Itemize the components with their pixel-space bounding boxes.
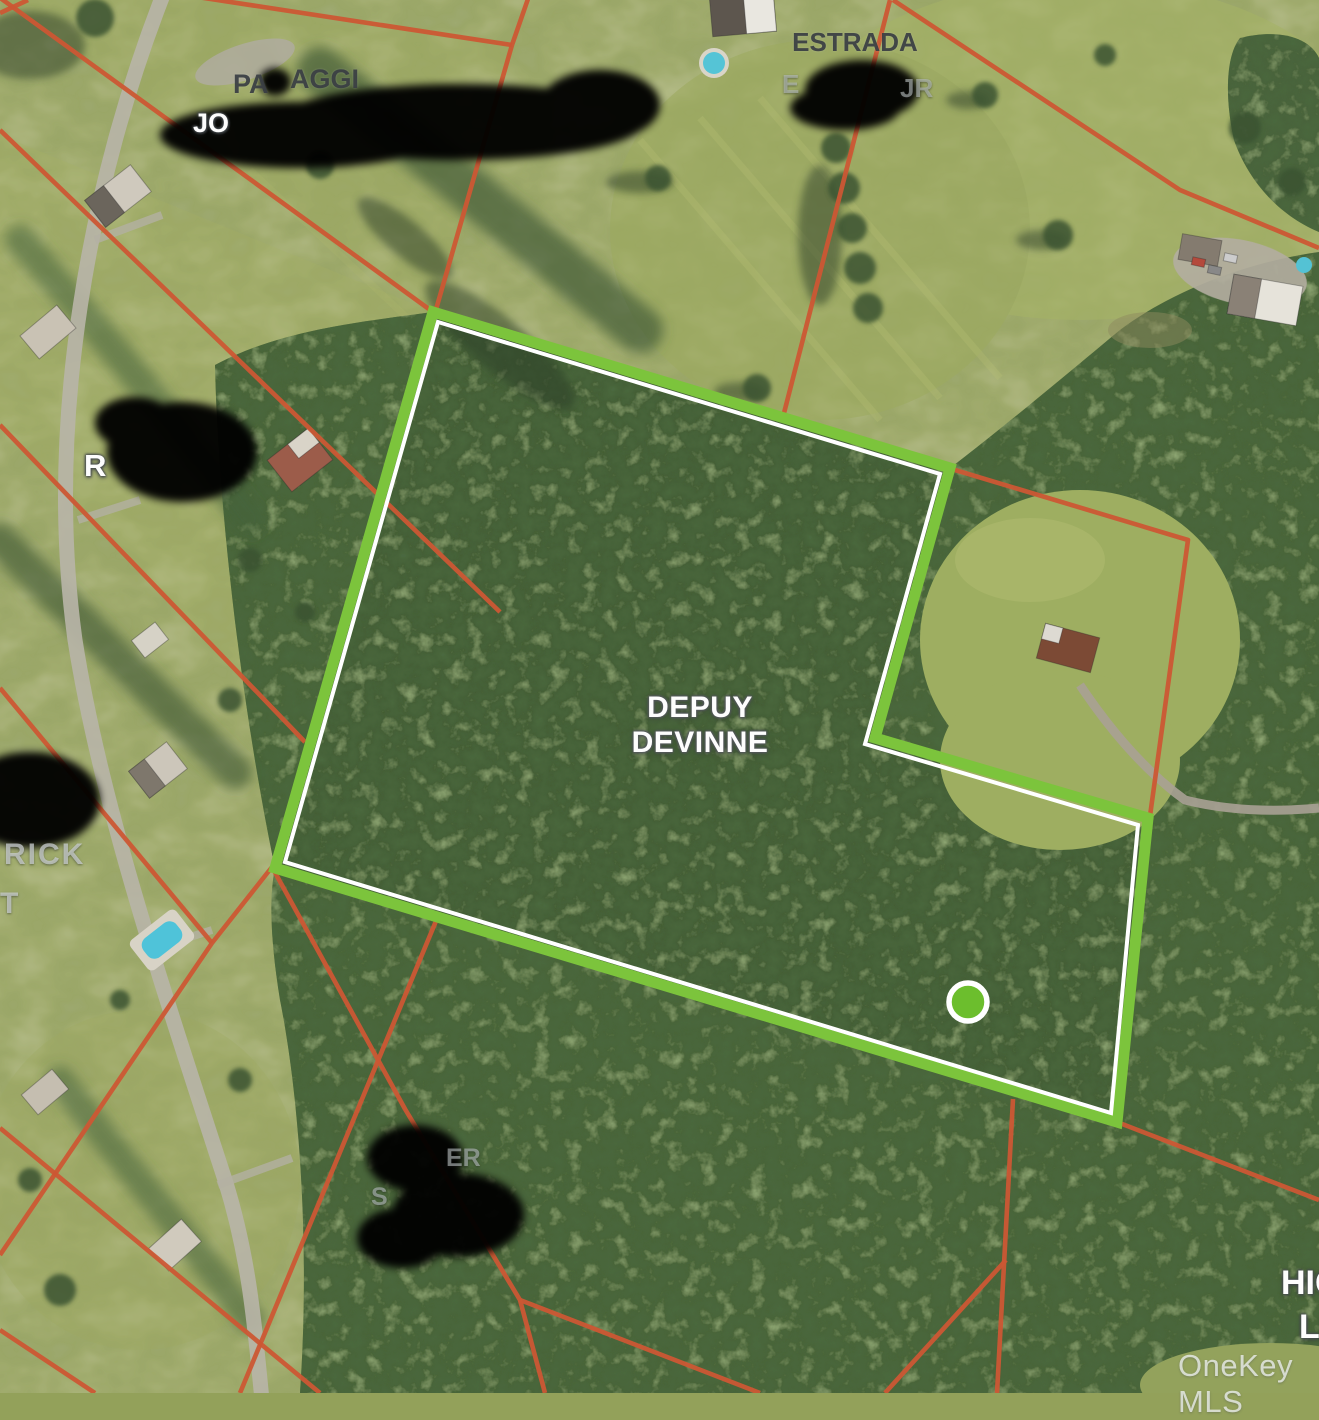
subject-parcel-label: DEPUY DEVINNE <box>555 690 845 760</box>
owner-label-west-fragment-r: R <box>84 448 106 484</box>
owner-label-passaggi-fragment-a: PA <box>233 69 269 100</box>
owner-label-estrada-fragment-right: JR <box>900 74 933 104</box>
owner-label-south-fragment-s: S <box>371 1183 388 1212</box>
pool-right <box>1296 257 1312 273</box>
owner-label-passaggi-fragment-c: JO <box>193 108 229 139</box>
aerial-parcel-map[interactable]: DEPUY DEVINNE ESTRADA E JR PA AGGI JO R … <box>0 0 1319 1393</box>
pool-round <box>703 52 725 74</box>
subject-parcel-label-line2: DEVINNE <box>555 725 845 760</box>
attribution-watermark: OneKey MLS <box>1178 1348 1318 1420</box>
owner-label-estrada: ESTRADA <box>770 28 940 58</box>
owner-label-west-fragment-t: T <box>0 887 18 922</box>
owner-label-southeast-line1: HIG <box>1281 1264 1319 1303</box>
subject-parcel-label-line1: DEPUY <box>555 690 845 725</box>
listing-marker-dot <box>949 983 987 1021</box>
owner-label-estrada-fragment-left: E <box>782 70 799 100</box>
owner-label-passaggi-fragment-b: AGGI <box>290 64 359 95</box>
owner-label-southeast-line2: LI <box>1299 1308 1319 1347</box>
owner-label-south-fragment-er: ER <box>446 1144 481 1173</box>
owner-label-west-fragment-rick: RICK <box>4 838 85 873</box>
